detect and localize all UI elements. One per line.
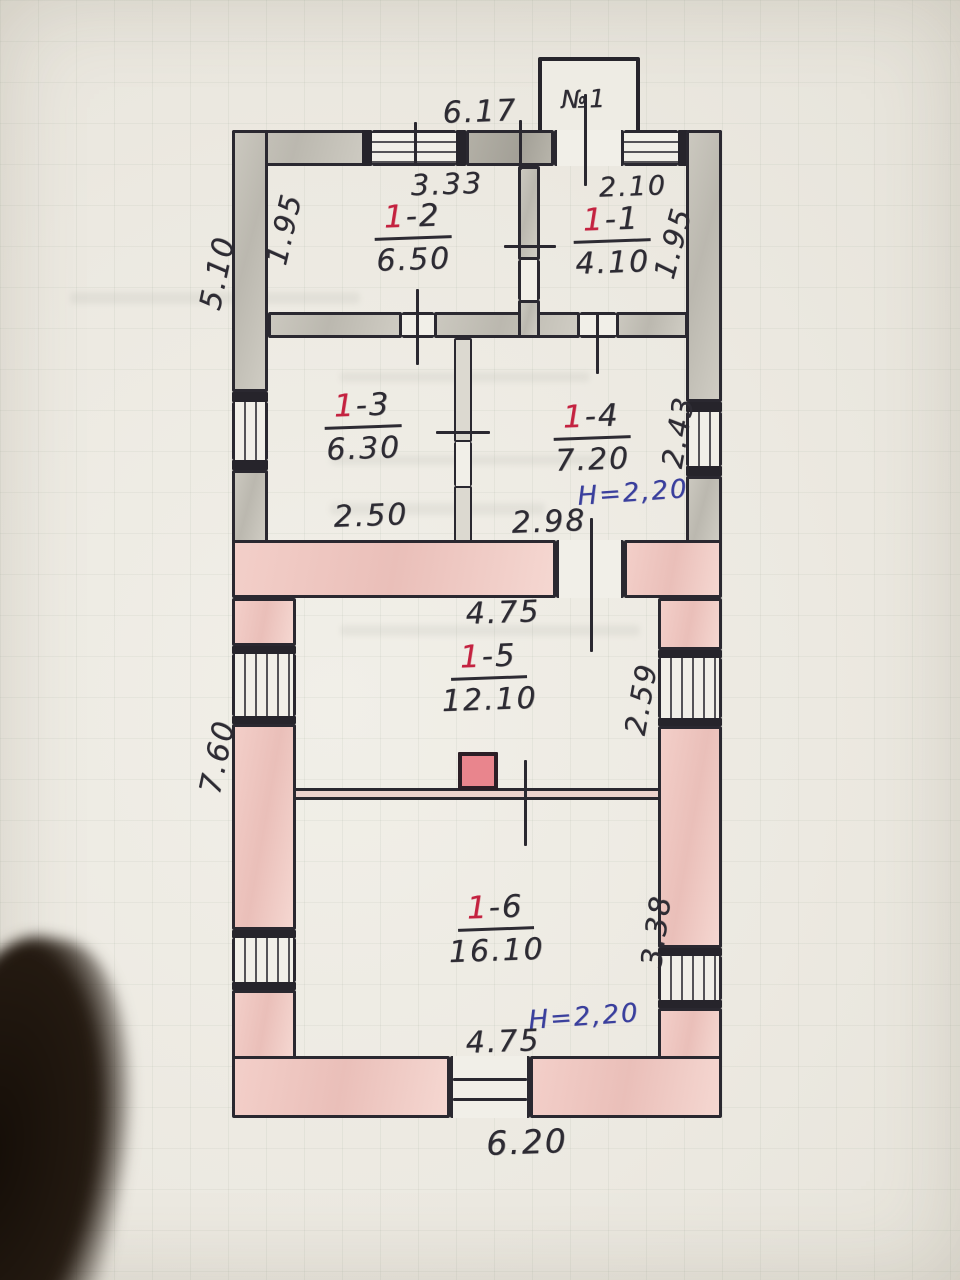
wall-pink-band-right [624, 540, 722, 598]
window-left-upper [232, 402, 268, 460]
room-number: 1-1 [572, 200, 650, 244]
window-cap [232, 460, 268, 470]
window-cap [658, 1000, 722, 1008]
door-tick-14 [596, 312, 599, 374]
stove-symbol [458, 752, 498, 790]
wall-right-lower-c [658, 1008, 722, 1060]
wall-left-lower-c [232, 990, 296, 1060]
floor-plan-sheet: 6.17 №1 3.33 2.10 1.95 1.95 5.10 1-2 6.5… [0, 0, 960, 1280]
dim-room-1-4-width: 2.98 [511, 503, 587, 541]
wall-left-upper-2 [232, 470, 268, 544]
wall-right-upper-2 [686, 476, 722, 544]
window-cap [232, 392, 268, 402]
dim-room-1-6-width: 4.75 [465, 1023, 541, 1061]
wall-left-lower-b [232, 724, 296, 930]
window-cap [362, 130, 372, 166]
room-area: 6.30 [325, 430, 403, 468]
room-area: 16.10 [448, 932, 545, 970]
wall-between-12-11-b [518, 300, 540, 338]
door-opening-entrance [450, 1056, 530, 1118]
wall-pink-band-left [232, 540, 556, 598]
wall-bottom-right [530, 1056, 722, 1118]
wall-interior-horizontal-a [268, 312, 402, 338]
room-area: 7.20 [554, 441, 632, 479]
dim-top-exterior: 6.17 [442, 93, 518, 131]
room-label-1-2: 1-2 6.50 [373, 197, 452, 279]
door-tick-13 [416, 289, 419, 365]
window-right-room15 [658, 658, 722, 718]
window-left-room15 [232, 654, 296, 716]
room-area: 12.10 [441, 681, 538, 719]
dim-tick [519, 120, 522, 170]
window-cap [232, 930, 296, 938]
room-label-1-5: 1-5 12.10 [440, 637, 539, 719]
door-tick-13-14 [436, 431, 490, 434]
wall-interior-horizontal-c [616, 312, 688, 338]
dim-room-1-5-depth: 2.59 [618, 660, 664, 737]
wall-top-middle [466, 130, 554, 166]
window-cap [658, 650, 722, 658]
door-opening-porch [554, 130, 624, 166]
room-number: 1-4 [552, 397, 630, 441]
window-left-room16 [232, 938, 296, 982]
wall-bottom-left [232, 1056, 450, 1118]
dim-room-1-1-width: 2.10 [598, 170, 667, 203]
room-number: 1-6 [456, 888, 534, 932]
dim-bottom-exterior: 6.20 [486, 1121, 569, 1163]
room-label-1-6: 1-6 16.10 [447, 888, 546, 970]
room-number: 1-3 [323, 386, 401, 430]
dim-tick [414, 122, 417, 166]
window-cap [232, 646, 296, 654]
wall-between-13-14 [454, 338, 472, 442]
wall-between-13-14-b [454, 486, 472, 542]
porch-label: №1 [561, 84, 608, 115]
window-cap [686, 466, 722, 476]
door-tick-14-15 [590, 518, 593, 652]
door-tick-15-16 [524, 760, 527, 846]
wall-interior-horizontal-b [434, 312, 580, 338]
height-note-upper: H=2,20 [576, 474, 689, 512]
room-label-1-3: 1-3 6.30 [323, 386, 402, 468]
dim-room-1-3-width: 2.50 [333, 497, 409, 535]
window-cap [658, 718, 722, 726]
window-cap [456, 130, 466, 166]
window-top-right [624, 130, 678, 166]
height-note-lower: H=2,20 [527, 998, 640, 1036]
door-opening-11 [518, 260, 540, 300]
window-cap [232, 982, 296, 990]
room-number: 1-5 [449, 637, 527, 681]
room-area: 4.10 [574, 244, 652, 282]
wall-left-lower-a [232, 598, 296, 646]
door-opening-13-14 [454, 442, 472, 486]
room-number: 1-2 [373, 197, 451, 241]
room-area: 6.50 [375, 241, 453, 279]
threshold-line [453, 1098, 527, 1101]
threshold-line [453, 1078, 527, 1081]
room-label-1-1: 1-1 4.10 [572, 200, 651, 282]
wall-right-upper [686, 130, 722, 402]
room-label-1-4: 1-4 7.20 [552, 397, 631, 479]
wall-right-lower-a [658, 598, 722, 650]
door-tick-11 [504, 245, 556, 248]
photo-shadow [0, 920, 162, 1280]
dim-room-1-5-width: 4.75 [465, 594, 541, 632]
